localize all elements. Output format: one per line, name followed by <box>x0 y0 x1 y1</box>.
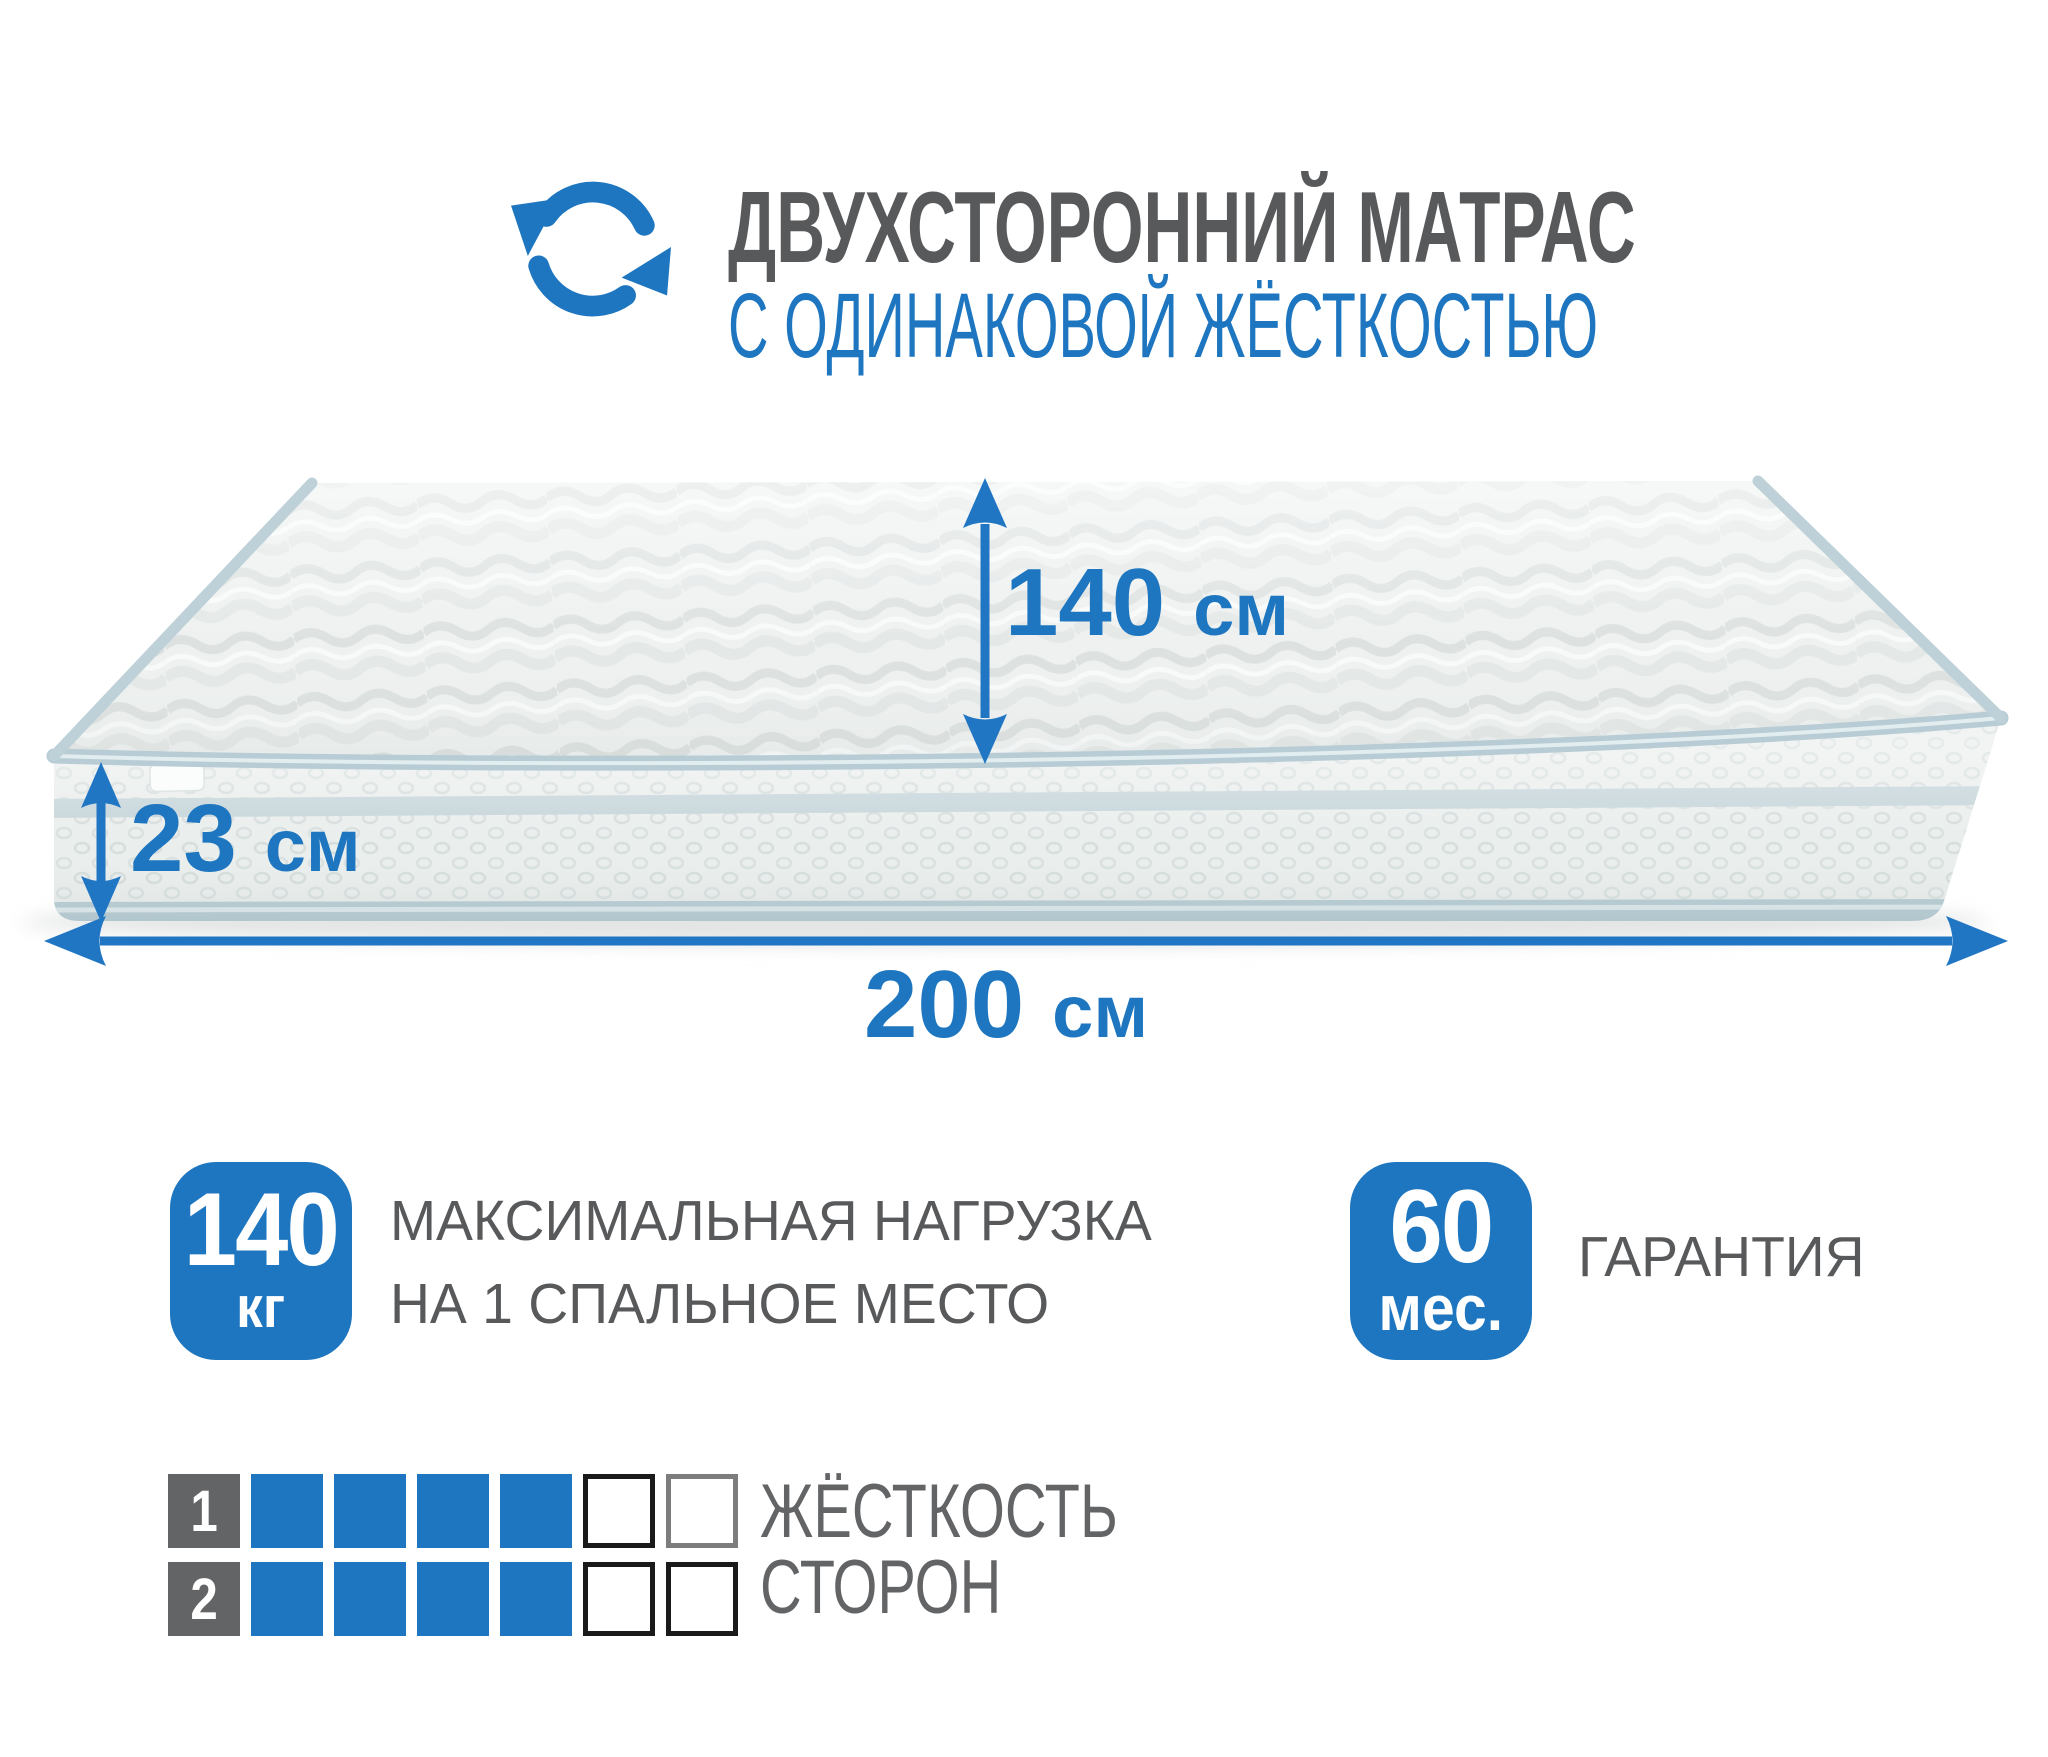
firmness-scale: 1 2 <box>168 1474 749 1650</box>
height-value: 23 <box>130 785 237 892</box>
rotate-arrows-icon <box>506 172 678 330</box>
width-dimension-label: 140см <box>1005 550 1289 656</box>
firmness-cell-filled <box>251 1474 323 1548</box>
firmness-side-number: 2 <box>168 1562 240 1636</box>
length-unit: см <box>1052 970 1148 1053</box>
warranty-unit: мес. <box>1379 1275 1504 1342</box>
warranty-caption-line1: ГАРАНТИЯ <box>1578 1216 1865 1299</box>
length-dimension-label: 200см <box>864 952 1148 1058</box>
max-load-unit: кг <box>237 1278 286 1339</box>
width-value: 140 <box>1005 549 1165 656</box>
warranty-badge: 60 мес. <box>1350 1162 1532 1360</box>
firmness-cell-filled <box>334 1562 406 1636</box>
firmness-cell-filled <box>417 1562 489 1636</box>
firmness-cell-empty <box>666 1562 738 1636</box>
max-load-badge: 140 кг <box>170 1162 352 1360</box>
height-unit: см <box>265 804 361 887</box>
firmness-side-number: 1 <box>168 1474 240 1548</box>
warranty-value: 60 <box>1390 1180 1493 1276</box>
max-load-caption-line1: МАКСИМАЛЬНАЯ НАГРУЗКА <box>390 1180 1152 1263</box>
firmness-cell-filled <box>251 1562 323 1636</box>
max-load-caption-line2: НА 1 СПАЛЬНОЕ МЕСТО <box>390 1263 1152 1346</box>
firmness-cell-empty <box>583 1562 655 1636</box>
firmness-cell-filled <box>500 1562 572 1636</box>
firmness-cell-empty <box>583 1474 655 1548</box>
firmness-label: ЖЁСТКОСТЬ СТОРОН <box>760 1474 1118 1626</box>
firmness-cells-side1 <box>251 1474 749 1548</box>
max-load-caption: МАКСИМАЛЬНАЯ НАГРУЗКА НА 1 СПАЛЬНОЕ МЕСТ… <box>390 1180 1152 1346</box>
length-value: 200 <box>864 951 1024 1058</box>
page-subtitle: С ОДИНАКОВОЙ ЖЁСТКОСТЬЮ <box>728 278 1598 374</box>
firmness-cell-filled <box>500 1474 572 1548</box>
firmness-label-line2: СТОРОН <box>760 1550 1118 1626</box>
firmness-label-line1: ЖЁСТКОСТЬ <box>760 1474 1118 1550</box>
firmness-row-side2: 2 <box>168 1562 749 1636</box>
firmness-cells-side2 <box>251 1562 749 1636</box>
max-load-value: 140 <box>184 1183 338 1279</box>
header: ДВУХСТОРОННИЙ МАТРАС С ОДИНАКОВОЙ ЖЁСТКО… <box>728 180 2048 374</box>
mattress-infographic: ДВУХСТОРОННИЙ МАТРАС С ОДИНАКОВОЙ ЖЁСТКО… <box>0 0 2048 1757</box>
page-title: ДВУХСТОРОННИЙ МАТРАС <box>728 180 1684 276</box>
firmness-cell-filled <box>417 1474 489 1548</box>
height-dimension-label: 23см <box>130 786 361 892</box>
firmness-cell-filled <box>334 1474 406 1548</box>
firmness-row-side1: 1 <box>168 1474 749 1548</box>
warranty-caption: ГАРАНТИЯ <box>1578 1216 1865 1299</box>
width-unit: см <box>1193 568 1289 651</box>
firmness-cell-empty <box>666 1474 738 1548</box>
